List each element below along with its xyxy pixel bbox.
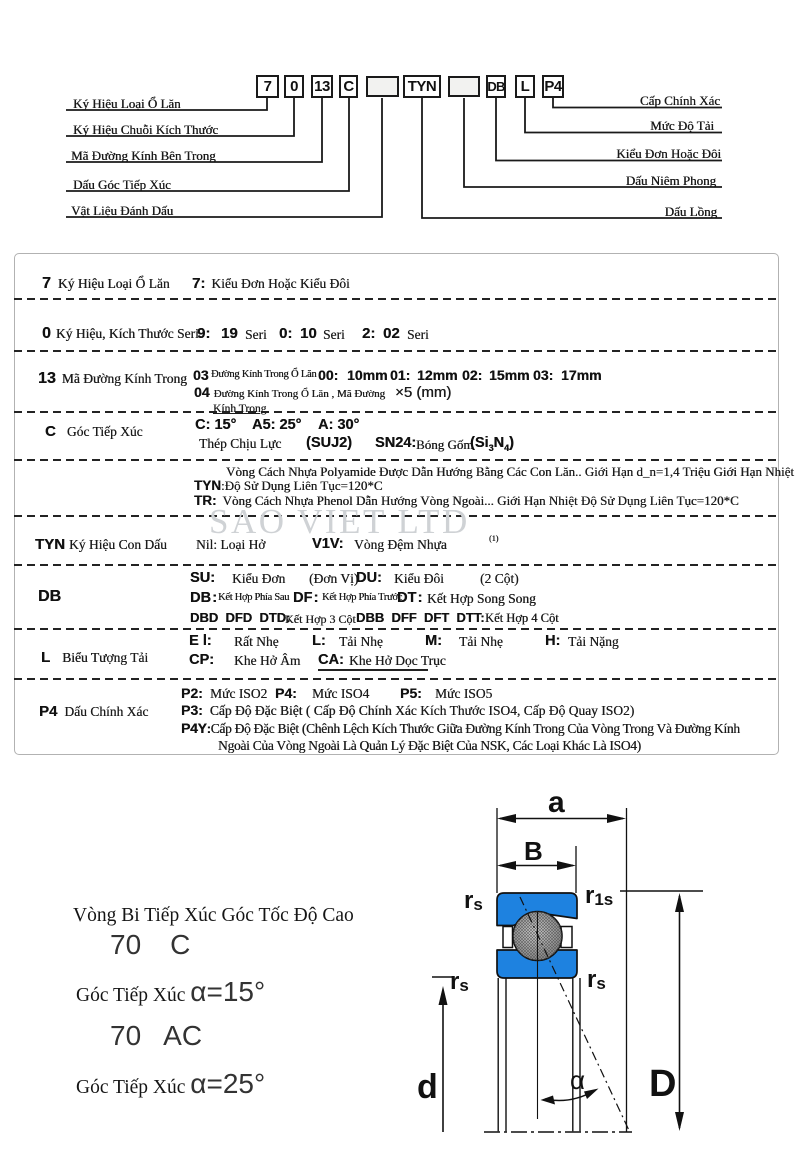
svg-text:B: B xyxy=(524,836,543,866)
svg-text:r1s: r1s xyxy=(585,882,613,909)
svg-text:rs: rs xyxy=(587,966,606,993)
svg-text:D: D xyxy=(649,1063,676,1105)
svg-text:rs: rs xyxy=(450,968,469,995)
svg-text:rs: rs xyxy=(464,887,483,914)
svg-text:α: α xyxy=(570,1065,585,1095)
svg-text:d: d xyxy=(417,1068,438,1106)
svg-text:a: a xyxy=(548,786,565,819)
